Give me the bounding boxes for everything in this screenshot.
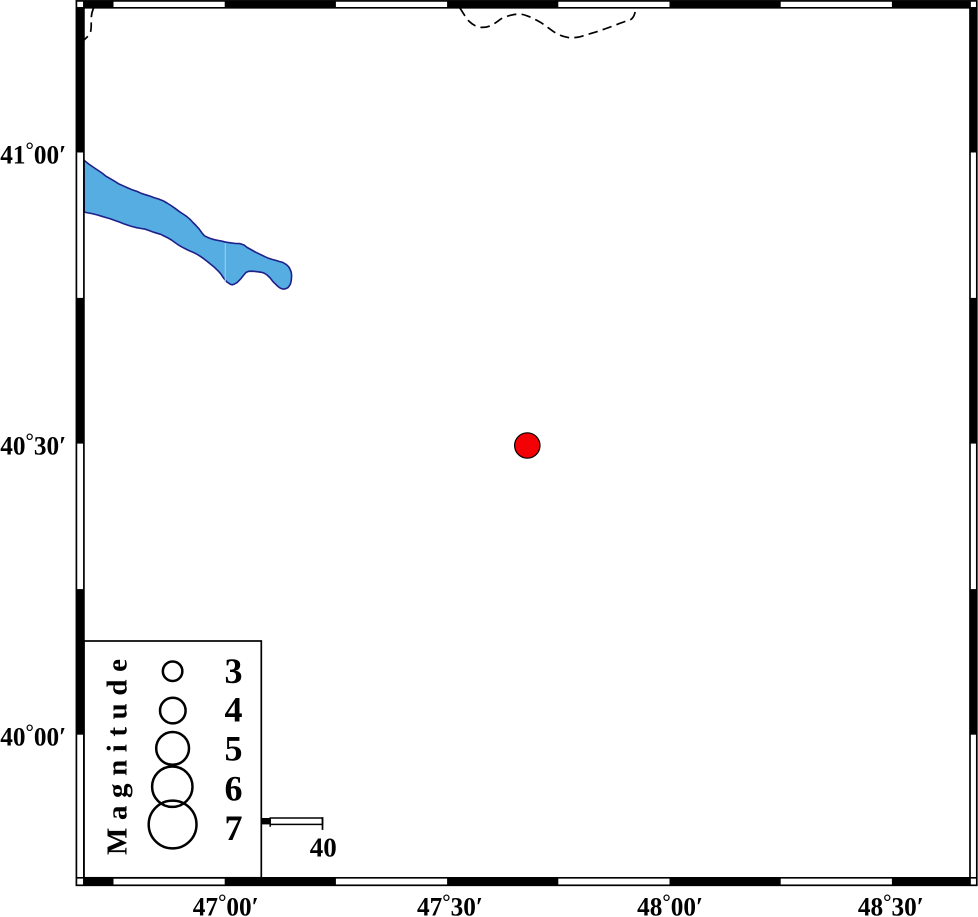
svg-text:40°30′: 40°30′ — [0, 429, 66, 461]
svg-text:7: 7 — [225, 808, 243, 848]
svg-text:47°30′: 47°30′ — [417, 889, 483, 917]
svg-text:5: 5 — [225, 728, 243, 768]
svg-text:40: 40 — [310, 833, 337, 863]
svg-text:48°00′: 48°00′ — [637, 889, 703, 917]
svg-text:41°00′: 41°00′ — [0, 138, 66, 170]
svg-text:40°00′: 40°00′ — [0, 720, 66, 752]
svg-text:47°00′: 47°00′ — [193, 889, 259, 917]
svg-text:48°30′: 48°30′ — [858, 889, 924, 917]
svg-text:4: 4 — [225, 690, 243, 730]
svg-text:6: 6 — [225, 769, 243, 809]
svg-text:3: 3 — [225, 651, 243, 691]
